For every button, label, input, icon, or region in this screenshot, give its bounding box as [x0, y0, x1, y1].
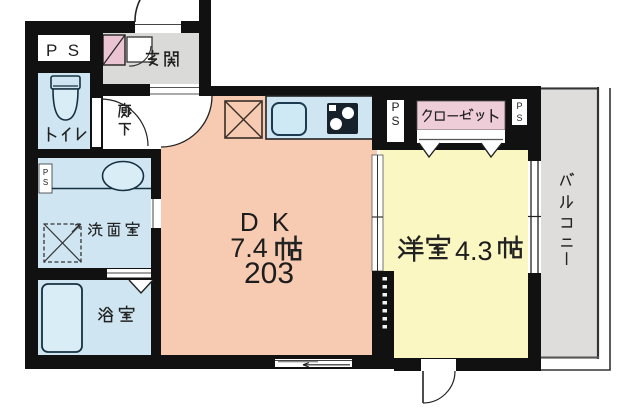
svg-text:4.3: 4.3	[455, 236, 493, 266]
svg-text:P: P	[516, 101, 522, 111]
svg-text:P S: P S	[46, 41, 82, 60]
svg-text:P: P	[391, 100, 399, 114]
svg-text:203: 203	[244, 257, 294, 290]
svg-text:S: S	[43, 178, 48, 187]
svg-text:P: P	[43, 168, 48, 177]
svg-text:S: S	[516, 113, 522, 123]
svg-text:S: S	[391, 114, 399, 128]
